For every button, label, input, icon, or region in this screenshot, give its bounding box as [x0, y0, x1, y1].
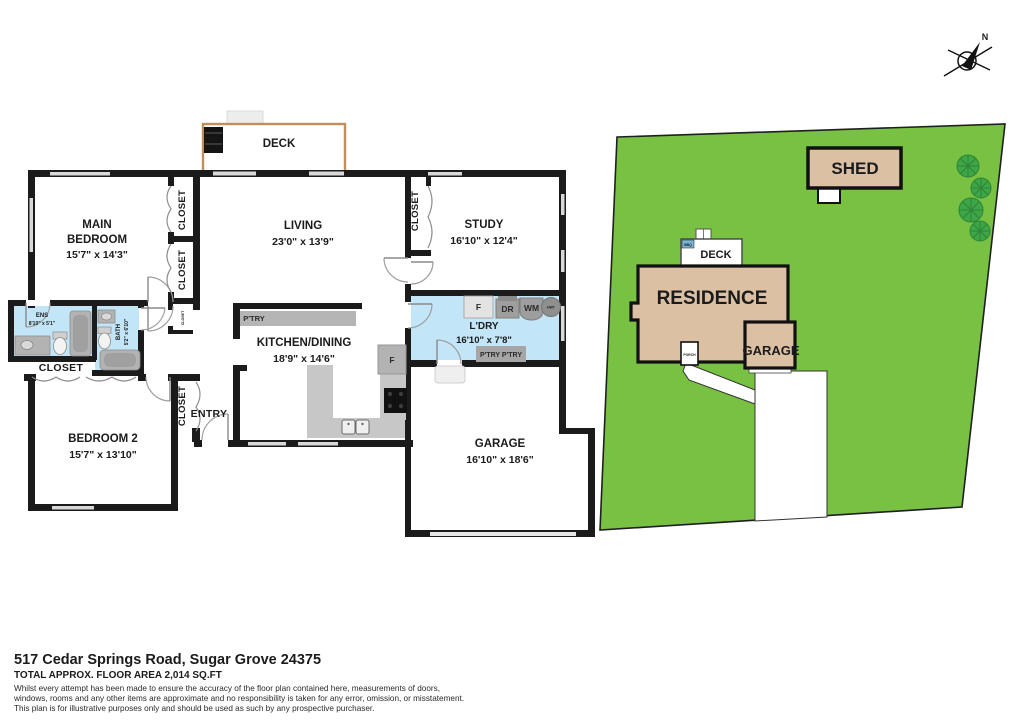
- disclaimer-line-2: windows, rooms and any other items are a…: [13, 694, 464, 703]
- kitchen-fridge-label: F: [389, 355, 394, 365]
- cooktop-icon: [384, 388, 407, 413]
- bbq-grill-icon: B.B.Q: [204, 127, 223, 153]
- study-dims: 16'10" x 12'4": [450, 235, 518, 247]
- floor-plan: B.B.Q DECK: [8, 111, 595, 537]
- compass-north-label: N: [982, 32, 989, 42]
- bedroom2-label: BEDROOM 2: [68, 433, 138, 445]
- bath-toilet-icon: [98, 327, 111, 349]
- floor-plan-page: SHED BBQ DECK RESIDENCE GARAGE PORCH N: [0, 0, 1024, 724]
- entry-label: ENTRY: [191, 408, 228, 420]
- closet-ens-label: CLOSET: [39, 362, 84, 374]
- dryer-panel: [498, 296, 517, 301]
- hot-water-label: HWT: [547, 306, 556, 310]
- ens-bathtub-icon: [70, 311, 91, 356]
- main-bedroom-dims: 15'7" x 14'3": [66, 249, 128, 261]
- washer-label: WM: [524, 303, 539, 313]
- kitchen-fixtures: [240, 311, 407, 438]
- bath-bathtub-icon: [100, 350, 140, 370]
- laundry-fridge-label: F: [476, 302, 481, 312]
- kitchen-label: KITCHEN/DINING: [257, 337, 352, 349]
- compass-icon: N: [944, 32, 992, 76]
- dryer-label: DR: [501, 304, 513, 314]
- disclaimer-line-1: Whilst every attempt has been made to en…: [14, 684, 440, 693]
- plan-canvas: SHED BBQ DECK RESIDENCE GARAGE PORCH N: [0, 0, 1024, 724]
- sink-icon: [342, 420, 369, 434]
- laundry-label: L'DRY: [469, 321, 499, 332]
- bedroom2-dims: 15'7" x 13'10": [69, 449, 137, 461]
- ens-dims: 8'10" x 5'1": [29, 321, 56, 327]
- floor-area-text: TOTAL APPROX. FLOOR AREA 2,014 SQ.FT: [14, 670, 222, 681]
- site-garage-label: GARAGE: [742, 343, 799, 358]
- garage-label: GARAGE: [475, 438, 526, 450]
- closet-study-label: CLOSET: [410, 191, 421, 231]
- main-bedroom-label-1: MAIN: [82, 219, 111, 231]
- living-label: LIVING: [284, 220, 322, 232]
- bath-dims: 5'2" x 6'10": [124, 318, 130, 345]
- site-plan: SHED BBQ DECK RESIDENCE GARAGE PORCH: [600, 124, 1005, 530]
- living-dims: 23'0" x 13'9": [272, 236, 334, 248]
- shed-label: SHED: [831, 159, 878, 178]
- bath-label: BATH: [116, 324, 122, 340]
- site-bbq-label: BBQ: [684, 243, 692, 247]
- garage-step: [435, 366, 465, 383]
- closet-hall-small-label: CLOSET: [181, 310, 185, 325]
- laundry-pantry-label: P'TRY P'TRY: [480, 352, 522, 359]
- closet-main1-label: CLOSET: [177, 190, 188, 230]
- driveway: [755, 371, 827, 521]
- bbq-label: B.B.Q: [209, 137, 219, 141]
- closet-main2-label: CLOSET: [177, 250, 188, 290]
- site-deck-label: DECK: [700, 249, 731, 261]
- study-label: STUDY: [465, 219, 504, 231]
- kitchen-dims: 18'9" x 14'6": [273, 353, 335, 365]
- footer: 517 Cedar Springs Road, Sugar Grove 2437…: [13, 652, 464, 713]
- closet-entry-label: CLOSET: [177, 386, 188, 426]
- address-text: 517 Cedar Springs Road, Sugar Grove 2437…: [14, 652, 321, 668]
- main-bedroom-label-2: BEDROOM: [67, 234, 127, 246]
- kitchen-pantry-label: P'TRY: [243, 314, 265, 323]
- garage-dims: 16'10" x 18'6": [466, 454, 534, 466]
- site-porch-label: PORCH: [683, 353, 696, 357]
- deck-label: DECK: [263, 138, 296, 150]
- ens-label: ENS: [36, 313, 48, 319]
- bath-sink-icon: [98, 310, 115, 323]
- disclaimer-line-3: This plan is for illustrative purposes o…: [14, 704, 374, 713]
- laundry-dims: 16'10" x 7'8": [456, 335, 512, 346]
- residence-label: RESIDENCE: [657, 288, 768, 309]
- ens-toilet-icon: [53, 332, 67, 355]
